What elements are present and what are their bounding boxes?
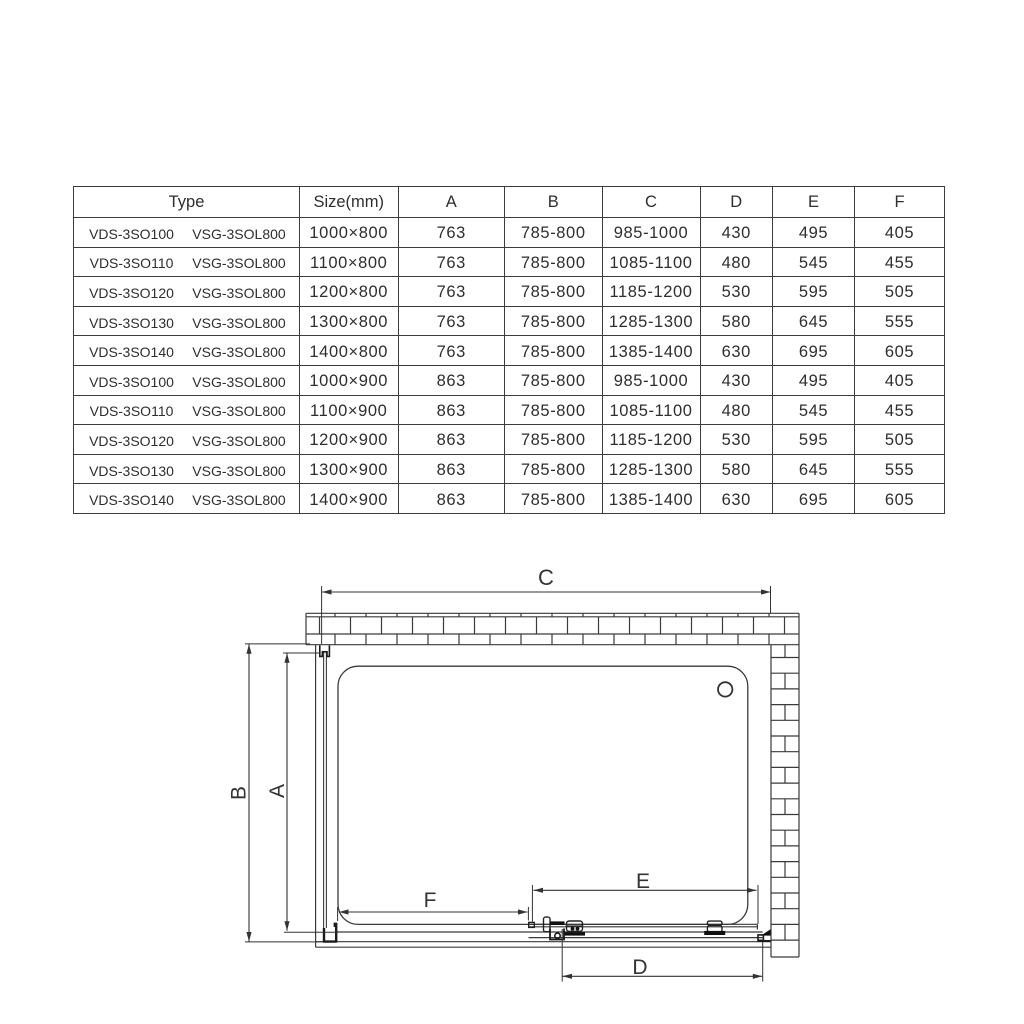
svg-text:C: C [538,565,554,590]
svg-text:D: D [632,956,647,979]
svg-text:B: B [228,786,251,800]
svg-text:A: A [266,784,289,798]
svg-text:F: F [424,889,437,912]
svg-text:E: E [636,870,650,893]
